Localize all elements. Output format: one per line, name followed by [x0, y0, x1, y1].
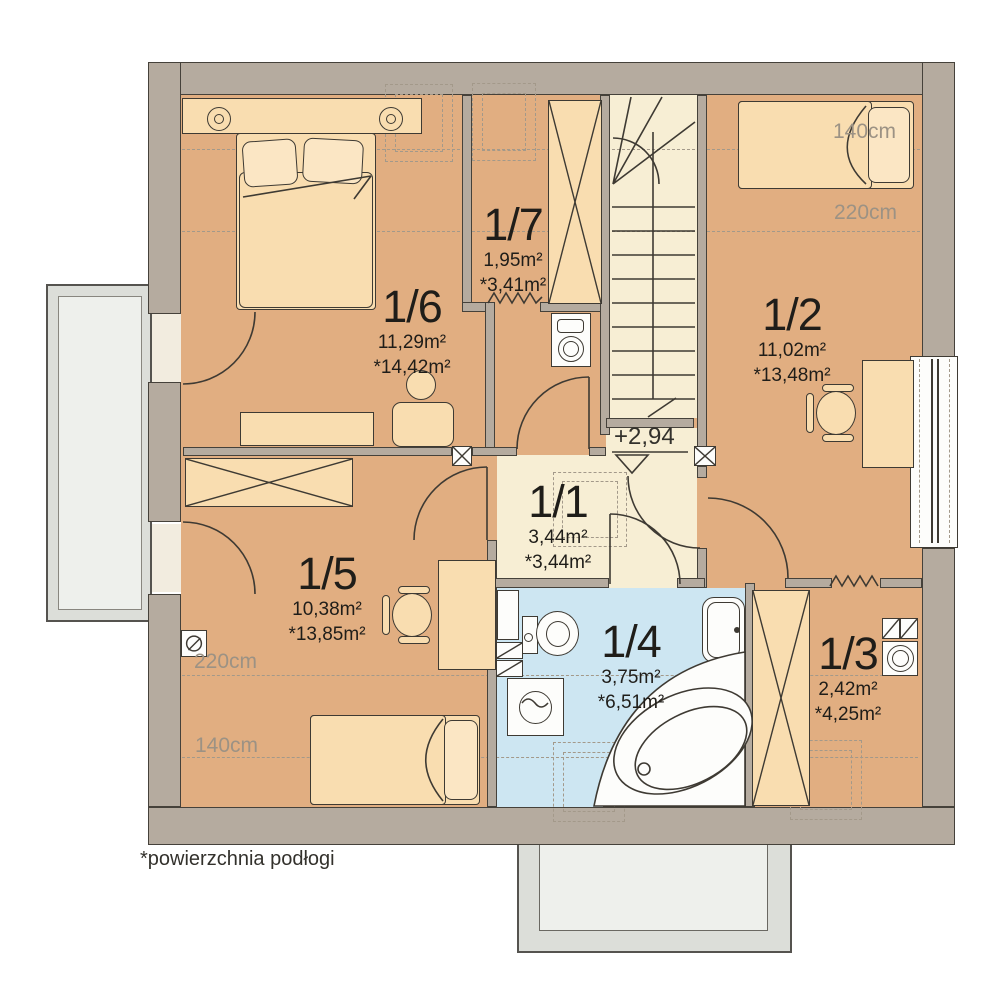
wall-bath-top-b: [677, 578, 705, 588]
room-number: 1/2: [707, 292, 877, 337]
chair-seat: [816, 391, 856, 435]
room-area: 3,75m²: [546, 667, 716, 689]
floor-staircase: [610, 95, 697, 418]
boiler: [551, 313, 591, 367]
room-area: 1,95m²: [428, 250, 598, 272]
wall-stairs-right-a: [697, 95, 707, 447]
wall-mid-horizontal-a: [183, 447, 452, 456]
wall-mid-horizontal-c: [589, 447, 606, 456]
toilet-flush-button: [524, 633, 533, 642]
desk-15: [438, 560, 496, 670]
headboard-knob-center: [214, 114, 224, 124]
cross-lines: [186, 459, 352, 506]
wall-12-13-b: [880, 578, 922, 588]
room-label-12: 1/2 11,02m² *13,48m²: [707, 292, 877, 387]
window-dash-line: [919, 359, 920, 543]
wall-left-lower: [148, 594, 181, 807]
room-number: 1/7: [428, 202, 598, 247]
single-bed-12-duvet: [738, 101, 872, 189]
roof-window-dashed-inner: [563, 752, 615, 812]
boiler-top: [557, 319, 584, 333]
pillow: [444, 720, 478, 800]
height-label-140-bottom: 140cm: [195, 734, 258, 758]
room-number: 1/4: [546, 619, 716, 664]
room-number: 1/3: [763, 631, 933, 676]
room-area: 2,42m²: [763, 679, 933, 701]
floor-plan: 1/6 11,29m² *14,42m² 1/7 1,95m² *3,41m² …: [0, 0, 1000, 991]
vent-box-icon: [694, 446, 716, 466]
room-label-13: 1/3 2,42m² *4,25m²: [763, 631, 933, 726]
room-floor-area: *3,41m²: [428, 275, 598, 297]
chair-back: [806, 393, 814, 433]
room-number: 1/5: [242, 551, 412, 596]
room-area: 11,02m²: [707, 340, 877, 362]
room-floor-area: *3,44m²: [473, 552, 643, 574]
pillow: [302, 137, 364, 184]
room-label-14: 1/4 3,75m² *6,51m²: [546, 619, 716, 714]
window-mullion: [937, 359, 939, 543]
window-mullion: [931, 359, 933, 543]
cross-icon: [695, 447, 715, 465]
room-area: 3,44m²: [473, 527, 643, 549]
window-mullion: [606, 798, 742, 800]
room-floor-area: *13,85m²: [242, 624, 412, 646]
wall-right-upper: [922, 62, 955, 360]
shelf-bedroom16: [240, 412, 374, 446]
room-area: 10,38m²: [242, 599, 412, 621]
wall-left-upper: [148, 62, 181, 314]
room-floor-area: *4,25m²: [763, 704, 933, 726]
footnote: *powierzchnia podłogi: [140, 848, 335, 871]
wall-mid-horizontal-b: [472, 447, 517, 456]
sink-drain: [734, 627, 740, 633]
headboard-knob-center: [386, 114, 396, 124]
room-label-15: 1/5 10,38m² *13,85m²: [242, 551, 412, 646]
diagonal-line: [497, 661, 522, 676]
room-number: 1/1: [473, 479, 643, 524]
room-floor-area: *6,51m²: [546, 692, 716, 714]
wardrobe-15: [185, 458, 353, 507]
height-label-220-top: 220cm: [834, 201, 897, 225]
height-label-140-top: 140cm: [833, 120, 896, 144]
height-label-220-bottom: 220cm: [194, 650, 257, 674]
bath-shelf-box: [496, 660, 523, 677]
room-label-16: 1/6 11,29m² *14,42m²: [327, 284, 497, 379]
chair-armrest: [822, 434, 854, 442]
diagonal-line: [497, 643, 522, 658]
stool-bench: [392, 402, 454, 447]
threshold-15: [152, 524, 181, 592]
cross-icon: [453, 447, 471, 465]
room-area: 11,29m²: [327, 332, 497, 354]
single-bed-15-duvet: [310, 715, 446, 805]
roof-window-dashed-inner: [482, 93, 526, 151]
wall-bath-top-a: [487, 578, 609, 588]
window-dash-line: [949, 359, 950, 543]
level-mark-text: +2,94: [614, 423, 675, 451]
bath-cabinet: [497, 590, 519, 640]
bath-shelf-box: [496, 642, 523, 659]
room-label-11: 1/1 3,44m² *3,44m²: [473, 479, 643, 574]
balcony-left-floor: [58, 296, 142, 610]
threshold-16: [152, 314, 181, 382]
wall-top: [148, 62, 955, 95]
wall-left-middle: [148, 382, 181, 522]
window-right: [910, 356, 958, 548]
wall-12-13-a: [785, 578, 832, 588]
wall-stairs-right-b: [697, 466, 707, 478]
room-floor-area: *14,42m²: [327, 357, 497, 379]
room-floor-area: *13,48m²: [707, 365, 877, 387]
pillow: [868, 107, 910, 183]
pillow: [241, 138, 298, 188]
boiler-ring-inner: [563, 341, 579, 357]
room-label-17: 1/7 1,95m² *3,41m²: [428, 202, 598, 297]
porch-bottom-floor: [539, 845, 768, 931]
vent-box-icon: [452, 446, 472, 466]
desk-chair-12: [806, 384, 860, 442]
